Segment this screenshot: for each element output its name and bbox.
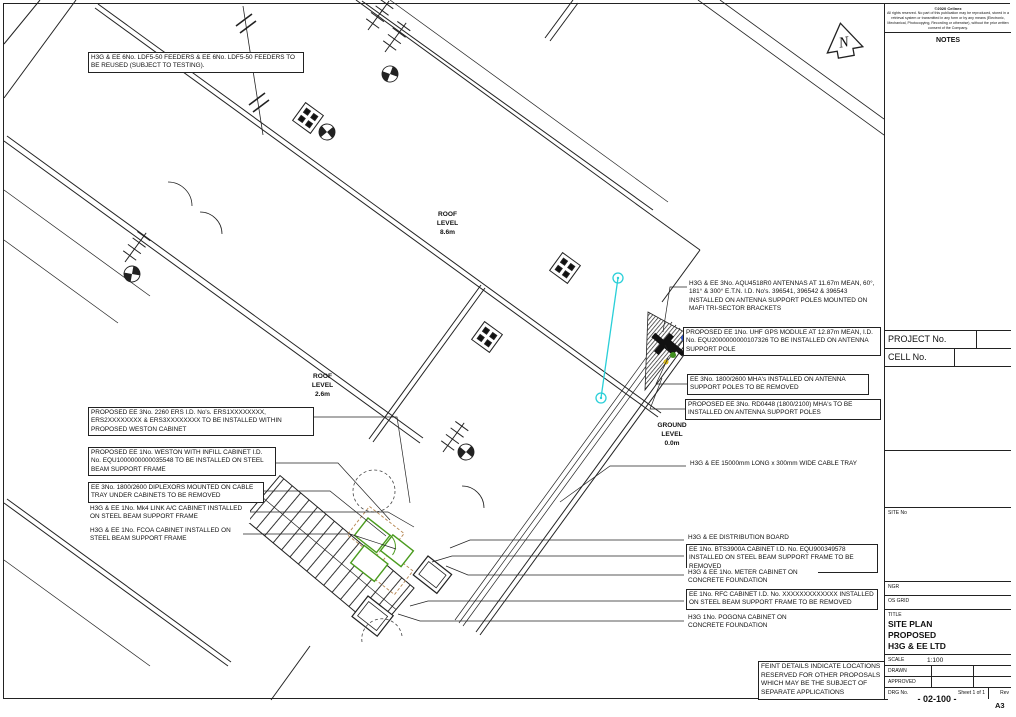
title-block: ©2020 Cellnex All rights reserved. No pa… [884, 4, 1011, 699]
empty-box-2 [885, 451, 1011, 508]
ngr-label: NGR [888, 584, 899, 590]
project-no-label: PROJECT No. [885, 331, 977, 348]
annotation-feeders: H3G & EE 6No. LDF5-50 FEEDERS & EE 6No. … [88, 52, 304, 73]
os-grid-label: OS GRID [888, 598, 909, 604]
roof-level-low-label: ROOF LEVEL 2.6m [295, 372, 350, 400]
project-no-row: PROJECT No. [885, 331, 1011, 349]
scale-label: SCALE [888, 657, 904, 663]
roof-level-main-label: ROOF LEVEL 8.6m [420, 210, 475, 238]
copyright-body: All rights reserved. No part of this pub… [885, 11, 1011, 30]
annotation-cable-tray: H3G & EE 15000mm LONG x 300mm WIDE CABLE… [688, 459, 884, 469]
title-box: TITLE SITE PLAN PROPOSED H3G & EE LTD [885, 610, 1011, 655]
empty-box-1 [885, 367, 1011, 451]
title-label: TITLE [885, 610, 1011, 618]
annotation-pogona: H3G 1No. POGONA CABINET ON CONCRETE FOUN… [686, 613, 818, 632]
annotation-mha-proposed: PROPOSED EE 3No. RD0448 (1800/2100) MHA'… [685, 399, 881, 420]
drawing-sheet: { "page": { "paper_size": "A3" }, "north… [0, 0, 1016, 717]
proposed-route-cyan [596, 273, 623, 403]
paper-size-label: A3 [995, 701, 1005, 710]
annotation-antennas: H3G & EE 3No. AQU4518R0 ANTENNAS AT 11.6… [687, 279, 879, 315]
site-no-label: SITE No [888, 510, 907, 516]
annotation-weston-cabinet: PROPOSED EE 1No. WESTON WITH INFILL CABI… [88, 447, 276, 476]
approved-label: APPROVED [888, 679, 916, 685]
drawing-title-line2: PROPOSED [888, 630, 1011, 641]
copyright-box: ©2020 Cellnex All rights reserved. No pa… [885, 4, 1011, 33]
annotation-rfc-cabinet: EE 1No. RFC CABINET I.D. No. XXXXXXXXXXX… [686, 589, 878, 610]
drg-no-box: DRG No. Sheet 1 of 1 Rev - 02-100 - [885, 688, 1011, 699]
notes-label: NOTES [936, 37, 960, 44]
cell-no-label: CELL No. [885, 349, 955, 366]
annotation-diplexors: EE 3No. 1800/2600 DIPLEXORS MOUNTED ON C… [88, 482, 264, 503]
notes-box: NOTES [885, 33, 1011, 331]
scale-row: SCALE 1:100 [885, 655, 1011, 666]
ground-level-label: GROUND LEVEL 0.0m [643, 421, 701, 449]
annotation-ers-units: PROPOSED EE 3No. 2260 ERS I.D. No's. ERS… [88, 407, 314, 436]
drawn-row: DRAWN [885, 666, 1011, 677]
ngr-row: NGR [885, 582, 1011, 596]
scale-value: 1:100 [927, 657, 943, 664]
os-grid-row: OS GRID [885, 596, 1011, 610]
rev-label: Rev [1000, 690, 1009, 696]
drawing-title-line3: H3G & EE LTD [888, 641, 1011, 652]
annotation-distribution-board: H3G & EE DISTRIBUTION BOARD [686, 533, 836, 543]
drawing-title-line1: SITE PLAN [888, 619, 1011, 630]
north-arrow: N [823, 20, 864, 60]
annotation-feint-note: FEINT DETAILS INDICATE LOCATIONS RESERVE… [758, 661, 888, 700]
site-no-box: SITE No [885, 508, 1011, 582]
drawn-label: DRAWN [888, 668, 907, 674]
drg-no-value: - 02-100 - [897, 694, 977, 704]
annotation-mk4-link: H3G & EE 1No. Mk4 LINK A/C CABINET INSTA… [88, 504, 250, 523]
annotation-fcoa: H3G & EE 1No. FCOA CABINET INSTALLED ON … [88, 526, 243, 545]
approved-row: APPROVED [885, 677, 1011, 688]
annotation-mha-removed: EE 3No. 1800/2600 MHA's INSTALLED ON ANT… [687, 374, 869, 395]
annotation-meter-cabinet: H3G & EE 1No. METER CABINET ON CONCRETE … [686, 568, 818, 587]
cell-no-row: CELL No. [885, 349, 1011, 367]
annotation-gps-module: PROPOSED EE 1No. UHF GPS MODULE AT 12.87… [683, 327, 881, 356]
